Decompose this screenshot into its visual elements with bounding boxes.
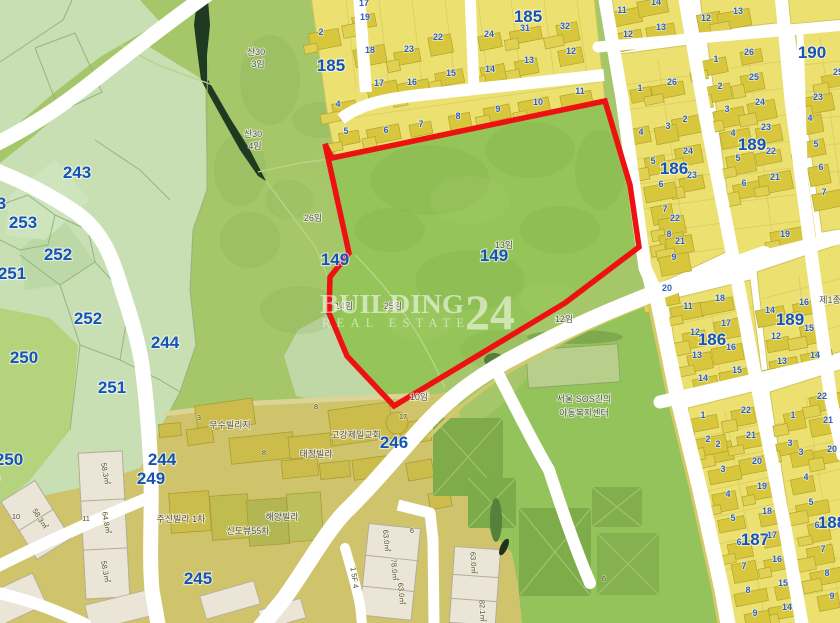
svg-text:6: 6 — [410, 526, 414, 535]
svg-text:22: 22 — [670, 213, 680, 223]
svg-text:252: 252 — [74, 309, 102, 328]
svg-text:19: 19 — [360, 12, 370, 22]
svg-text:8: 8 — [455, 111, 460, 121]
svg-text:2: 2 — [715, 439, 720, 449]
svg-text:아동복지센터: 아동복지센터 — [559, 408, 609, 418]
svg-text:250: 250 — [0, 450, 23, 469]
svg-text:8: 8 — [824, 568, 829, 578]
svg-text:24: 24 — [683, 146, 693, 156]
svg-text:7: 7 — [741, 561, 746, 571]
svg-text:17: 17 — [374, 78, 384, 88]
svg-text:신도뷰55차: 신도뷰55차 — [226, 525, 270, 536]
svg-text:26: 26 — [744, 47, 754, 57]
svg-text:23: 23 — [761, 122, 771, 132]
svg-text:8: 8 — [666, 229, 671, 239]
svg-text:1: 1 — [700, 410, 705, 420]
svg-text:7: 7 — [820, 544, 825, 554]
svg-text:10: 10 — [533, 97, 543, 107]
svg-text:19: 19 — [780, 229, 790, 239]
svg-text:21: 21 — [746, 430, 756, 440]
svg-text:제1종: 제1종 — [819, 295, 840, 305]
svg-text:4: 4 — [730, 128, 735, 138]
svg-text:26임: 26임 — [304, 212, 322, 223]
svg-text:6: 6 — [741, 178, 746, 188]
svg-text:3: 3 — [720, 464, 725, 474]
svg-text:3: 3 — [798, 447, 803, 457]
svg-text:22: 22 — [741, 405, 751, 415]
svg-text:12: 12 — [701, 13, 711, 23]
svg-text:BUILDING: BUILDING — [320, 289, 464, 319]
svg-text:263: 263 — [0, 194, 6, 213]
svg-text:13: 13 — [777, 356, 787, 366]
svg-text:13: 13 — [524, 55, 534, 65]
svg-text:9: 9 — [495, 104, 500, 114]
svg-text:14: 14 — [782, 602, 792, 612]
svg-text:8: 8 — [314, 402, 318, 411]
svg-text:22: 22 — [433, 32, 443, 42]
svg-text:24: 24 — [465, 284, 515, 340]
svg-text:18: 18 — [762, 506, 772, 516]
svg-text:26: 26 — [667, 77, 677, 87]
svg-text:해양빌라: 해양빌라 — [265, 512, 299, 522]
svg-text:11: 11 — [617, 5, 627, 15]
svg-text:25: 25 — [749, 72, 759, 82]
svg-text:189: 189 — [776, 310, 804, 329]
svg-text:11: 11 — [575, 86, 585, 96]
svg-text:3: 3 — [197, 413, 201, 422]
svg-text:8: 8 — [262, 448, 266, 457]
svg-text:5: 5 — [813, 139, 818, 149]
svg-text:22: 22 — [766, 146, 776, 156]
svg-text:10임: 10임 — [410, 391, 428, 402]
svg-text:8: 8 — [745, 585, 750, 595]
svg-text:4: 4 — [725, 489, 730, 499]
svg-text:243: 243 — [63, 163, 91, 182]
svg-text:21: 21 — [823, 415, 833, 425]
svg-text:9: 9 — [671, 252, 676, 262]
svg-text:태정빌라: 태정빌라 — [299, 449, 333, 459]
svg-text:7: 7 — [662, 204, 667, 214]
svg-text:5: 5 — [343, 126, 348, 136]
svg-text:산30: 산30 — [244, 129, 262, 139]
svg-text:14: 14 — [485, 64, 495, 74]
svg-text:산30: 산30 — [247, 47, 265, 57]
svg-text:14: 14 — [765, 305, 775, 315]
svg-text:186: 186 — [660, 159, 688, 178]
svg-text:14: 14 — [698, 373, 708, 383]
svg-text:17: 17 — [721, 318, 731, 328]
svg-text:244: 244 — [151, 333, 180, 352]
svg-text:5: 5 — [730, 513, 735, 523]
svg-text:190: 190 — [798, 43, 826, 62]
svg-text:16: 16 — [799, 297, 809, 307]
svg-text:5: 5 — [808, 497, 813, 507]
svg-text:고강제일교회: 고강제일교회 — [331, 430, 381, 440]
svg-text:19: 19 — [757, 481, 767, 491]
svg-text:149: 149 — [321, 250, 349, 269]
svg-text:15: 15 — [778, 578, 788, 588]
svg-text:251: 251 — [98, 378, 126, 397]
svg-text:5: 5 — [735, 153, 740, 163]
svg-text:2: 2 — [318, 27, 323, 37]
svg-text:253: 253 — [9, 213, 37, 232]
svg-text:244: 244 — [148, 450, 177, 469]
svg-text:185: 185 — [317, 56, 345, 75]
svg-text:189: 189 — [738, 135, 766, 154]
svg-text:2: 2 — [717, 81, 722, 91]
svg-text:무수빌리지: 무수빌리지 — [209, 420, 250, 430]
svg-text:245: 245 — [184, 569, 212, 588]
svg-text:31: 31 — [520, 23, 530, 33]
svg-text:16: 16 — [772, 554, 782, 564]
svg-text:249: 249 — [137, 469, 165, 488]
svg-text:2: 2 — [705, 434, 710, 444]
svg-text:21: 21 — [675, 236, 685, 246]
svg-text:13임: 13임 — [495, 239, 513, 250]
svg-text:186: 186 — [698, 330, 726, 349]
svg-text:6: 6 — [602, 574, 606, 583]
svg-text:11: 11 — [683, 301, 693, 311]
svg-text:REAL ESTATE: REAL ESTATE — [322, 316, 464, 330]
svg-text:4임: 4임 — [248, 140, 261, 151]
svg-text:6: 6 — [736, 537, 741, 547]
svg-text:20: 20 — [752, 456, 762, 466]
svg-text:3임: 3임 — [251, 58, 264, 69]
svg-text:6: 6 — [814, 520, 819, 530]
svg-text:251: 251 — [0, 264, 26, 283]
svg-text:6: 6 — [818, 162, 823, 172]
svg-text:246: 246 — [380, 433, 408, 452]
svg-text:12임: 12임 — [555, 313, 573, 324]
svg-text:17: 17 — [399, 412, 407, 421]
svg-text:82.1㎡: 82.1㎡ — [477, 600, 487, 623]
svg-text:4: 4 — [335, 99, 340, 109]
svg-text:9: 9 — [829, 591, 834, 601]
svg-text:14: 14 — [651, 0, 661, 7]
svg-text:252: 252 — [44, 245, 72, 264]
svg-text:23: 23 — [813, 92, 823, 102]
svg-text:16: 16 — [726, 342, 736, 352]
svg-text:20: 20 — [827, 444, 837, 454]
svg-text:4: 4 — [807, 113, 812, 123]
svg-text:25: 25 — [833, 67, 840, 77]
svg-text:1: 1 — [637, 83, 642, 93]
svg-text:1: 1 — [713, 54, 718, 64]
svg-text:6: 6 — [383, 125, 388, 135]
svg-text:서울 SOS긴의: 서울 SOS긴의 — [557, 394, 612, 404]
svg-text:250: 250 — [10, 348, 38, 367]
svg-text:20: 20 — [662, 283, 672, 293]
svg-text:2: 2 — [682, 114, 687, 124]
svg-text:17: 17 — [359, 0, 369, 8]
svg-text:13: 13 — [733, 6, 743, 16]
svg-text:15: 15 — [804, 323, 814, 333]
svg-text:12: 12 — [771, 331, 781, 341]
svg-text:15: 15 — [446, 68, 456, 78]
svg-text:23: 23 — [404, 44, 414, 54]
svg-text:16: 16 — [407, 77, 417, 87]
svg-text:12: 12 — [623, 29, 633, 39]
svg-text:12: 12 — [566, 46, 576, 56]
svg-text:주신빌라 1차: 주신빌라 1차 — [157, 513, 207, 524]
svg-text:15: 15 — [732, 365, 742, 375]
svg-text:188: 188 — [818, 513, 840, 532]
svg-text:22: 22 — [817, 391, 827, 401]
svg-text:4: 4 — [803, 472, 808, 482]
svg-text:12: 12 — [690, 327, 700, 337]
svg-text:23: 23 — [687, 170, 697, 180]
svg-text:24: 24 — [755, 97, 765, 107]
svg-text:21: 21 — [770, 172, 780, 182]
svg-text:10: 10 — [12, 512, 20, 521]
svg-text:7: 7 — [821, 187, 826, 197]
svg-text:4: 4 — [638, 127, 643, 137]
svg-text:17: 17 — [767, 530, 777, 540]
svg-text:6: 6 — [658, 179, 663, 189]
svg-text:32: 32 — [560, 21, 570, 31]
svg-text:9: 9 — [752, 608, 757, 618]
svg-text:14: 14 — [810, 350, 820, 360]
svg-text:24: 24 — [484, 29, 494, 39]
svg-text:18: 18 — [365, 45, 375, 55]
svg-text:5: 5 — [650, 156, 655, 166]
svg-text:3: 3 — [787, 438, 792, 448]
svg-text:3: 3 — [724, 104, 729, 114]
svg-text:11: 11 — [82, 514, 90, 523]
svg-text:13: 13 — [656, 22, 666, 32]
svg-text:1: 1 — [790, 410, 795, 420]
svg-text:3: 3 — [665, 121, 670, 131]
svg-text:187: 187 — [741, 530, 769, 549]
svg-text:7: 7 — [418, 119, 423, 129]
svg-text:18: 18 — [715, 293, 725, 303]
svg-text:13: 13 — [692, 350, 702, 360]
svg-text:63.0㎡: 63.0㎡ — [468, 552, 478, 575]
